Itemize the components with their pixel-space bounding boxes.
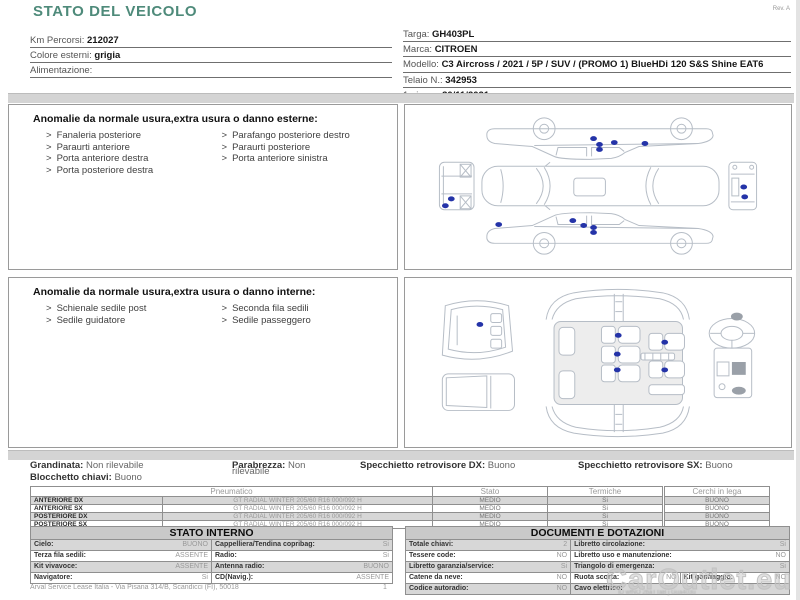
table-header-row: STATO INTERNO <box>31 527 393 540</box>
field-value: grigia <box>94 50 120 61</box>
table-row: Totale chiavi:2 Libretto circolazione:Si <box>406 540 790 551</box>
car-side-view-bottom <box>487 213 713 254</box>
bullet: > <box>222 153 228 164</box>
anomaly-item: >Schienale sedile post <box>46 303 222 315</box>
external-anomalies-title: Anomalie da normale usura,extra usura o … <box>33 113 397 125</box>
item-label: Totale chiavi: <box>409 540 453 550</box>
car-side-view-top <box>487 118 713 159</box>
item-value: Si <box>383 540 389 550</box>
damage-dot <box>596 147 603 152</box>
rim-state: BUONO <box>665 497 770 505</box>
internal-anomalies-list: >Schienale sedile post >Sedile guidatore… <box>46 303 397 326</box>
tyre-position: ANTERIORE SX <box>31 505 163 513</box>
tyre-state: MEDIO <box>433 505 548 513</box>
item-value: Si <box>202 573 208 583</box>
item-value: NO <box>557 584 568 594</box>
anomaly-text: Sedile passeggero <box>232 315 311 326</box>
field-value: GH403PL <box>432 29 474 40</box>
tyre-winter: Si <box>548 497 663 505</box>
field-label: Km Percorsi: <box>30 35 84 46</box>
item-value: NO <box>776 551 787 561</box>
cabin-seats-view <box>546 289 689 436</box>
field-value: CITROEN <box>435 44 478 55</box>
bullet: > <box>222 142 228 153</box>
item-value: Si <box>780 540 786 550</box>
exterior-damage-diagram <box>404 104 792 270</box>
item-label: CD(Navig.): <box>215 573 253 583</box>
item-label: Libretto circolazione: <box>574 540 645 550</box>
field-value: 342953 <box>445 75 477 86</box>
tyres-header-termiche: Termiche <box>548 487 663 497</box>
anomaly-text: Parafango posteriore destro <box>232 130 350 141</box>
bullet: > <box>46 142 52 153</box>
damage-dot <box>661 367 668 372</box>
stato-interno-table: STATO INTERNO Cielo:BUONO Cappelliera/Te… <box>30 526 393 584</box>
stato-interno-title: STATO INTERNO <box>31 527 393 540</box>
tyres-header-stato: Stato <box>433 487 548 497</box>
internal-anomalies-title: Anomalie da normale usura,extra usura o … <box>33 286 397 298</box>
table-header-row: DOCUMENTI E DOTAZIONI <box>406 527 790 540</box>
rim-state: BUONO <box>665 513 770 521</box>
item-label: Libretto garanzia/service: <box>409 562 494 572</box>
page-right-edge <box>796 0 800 600</box>
field-km-percorsi: Km Percorsi: 212027 <box>30 33 392 48</box>
condition-label: Specchietto retrovisore DX: <box>360 460 485 471</box>
item-value: NO <box>557 551 568 561</box>
bullet: > <box>46 153 52 164</box>
item-value: Si <box>383 551 389 561</box>
rim-state: BUONO <box>665 505 770 513</box>
damage-dot <box>611 140 618 145</box>
damage-dot <box>741 194 748 199</box>
bullet: > <box>222 315 228 326</box>
anomaly-item: >Paraurti anteriore <box>46 142 222 154</box>
page-title: STATO DEL VEICOLO <box>33 3 197 20</box>
field-alimentazione: Alimentazione: <box>30 63 392 78</box>
anomaly-item: >Fanaleria posteriore <box>46 130 222 142</box>
vehicle-status-document: STATO DEL VEICOLO Rev. A Km Percorsi: 21… <box>0 0 800 600</box>
damage-dot <box>590 136 597 141</box>
tyres-header-row: Pneumatico Stato Termiche <box>31 487 663 497</box>
item-label: Antenna radio: <box>215 562 264 572</box>
tyre-position: ANTERIORE DX <box>31 497 163 505</box>
condition-value: Non rilevabile <box>86 460 144 471</box>
bullet: > <box>222 130 228 141</box>
tyre-position: POSTERIORE DX <box>31 513 163 521</box>
item-value: BUONO <box>363 562 389 572</box>
table-row: ANTERIORE DX GT RADIAL WINTER 205/60 R16… <box>31 497 663 505</box>
anomaly-text: Paraurti posteriore <box>232 142 310 153</box>
item-value: Si <box>561 562 567 572</box>
condition-value: Buono <box>705 460 732 471</box>
anomaly-text: Seconda fila sedili <box>232 303 309 314</box>
anomaly-item: >Sedile guidatore <box>46 315 222 327</box>
damage-dot <box>596 142 603 147</box>
field-value: 212027 <box>87 35 119 46</box>
external-anomalies-list: >Fanaleria posteriore >Paraurti anterior… <box>46 130 397 176</box>
interior-damage-diagram <box>404 277 792 448</box>
table-row: Terza fila sedili:ASSENTE Radio:Si <box>31 551 393 562</box>
anomaly-item: >Porta posteriore destra <box>46 165 222 177</box>
tyre-winter: Si <box>548 505 663 513</box>
item-label: Radio: <box>215 551 237 561</box>
tyres-header-pneumatico: Pneumatico <box>31 487 433 497</box>
damage-dot <box>590 225 597 230</box>
damage-dot <box>740 185 747 190</box>
field-label: Targa: <box>403 29 429 40</box>
table-row: BUONO <box>665 505 770 513</box>
rims-header: Cerchi in lega <box>665 487 770 497</box>
field-colore-esterni: Colore esterni: grigia <box>30 48 392 63</box>
condition-value: Buono <box>114 472 141 483</box>
footer-company: Arval Service Lease Italia - Via Pisana … <box>30 584 239 591</box>
item-label: Navigatore: <box>34 573 73 583</box>
anomaly-item: >Porta anteriore sinistra <box>222 153 398 165</box>
tailgate-open-view <box>442 301 512 359</box>
tyre-state: MEDIO <box>433 513 548 521</box>
anomaly-item: >Parafango posteriore destro <box>222 130 398 142</box>
vehicle-info-right: Targa: GH403PL Marca: CITROEN Modello: C… <box>403 27 791 103</box>
field-telaio: Telaio N.: 342953 <box>403 73 791 88</box>
condition-blocchetto-chiavi: Blocchetto chiavi: Buono <box>30 473 142 483</box>
bullet: > <box>46 130 52 141</box>
item-label: Terza fila sedili: <box>34 551 86 561</box>
car-interior-drawing <box>405 278 791 447</box>
anomaly-item: >Seconda fila sedili <box>222 303 398 315</box>
damage-dot <box>442 203 449 208</box>
car-exterior-drawing <box>405 105 791 269</box>
field-targa: Targa: GH403PL <box>403 27 791 42</box>
item-value: NO <box>557 573 568 583</box>
condition-label: Blocchetto chiavi: <box>30 472 112 483</box>
tyre-winter: Si <box>548 513 663 521</box>
condition-value: rilevabile <box>232 466 270 477</box>
anomaly-text: Porta posteriore destra <box>57 165 154 176</box>
item-value: ASSENTE <box>175 562 208 572</box>
section-separator-bar <box>8 450 794 460</box>
damage-dot <box>569 218 576 223</box>
anomaly-item: >Sedile passeggero <box>222 315 398 327</box>
item-value: 2 <box>563 540 567 550</box>
bullet: > <box>46 315 52 326</box>
dashboard-view <box>709 313 754 398</box>
field-label: Telaio N.: <box>403 75 443 86</box>
damage-dot <box>495 222 502 227</box>
car-top-view <box>482 162 719 209</box>
table-row: BUONO <box>665 497 770 505</box>
anomaly-text: Fanaleria posteriore <box>57 130 142 141</box>
damage-dot <box>590 230 597 235</box>
damage-dot <box>661 340 668 345</box>
tyre-spec: GT RADIAL WINTER 205/60 R16 000/092 H <box>163 513 433 521</box>
item-label: Cielo: <box>34 540 53 550</box>
footer-page-number: 1 <box>383 584 387 591</box>
documenti-title: DOCUMENTI E DOTAZIONI <box>406 527 790 540</box>
damage-dot <box>614 352 621 357</box>
item-value: BUONO <box>182 540 208 550</box>
table-row: POSTERIORE DX GT RADIAL WINTER 205/60 R1… <box>31 513 663 521</box>
field-label: Alimentazione: <box>30 65 92 76</box>
condition-label: Grandinata: <box>30 460 83 471</box>
rims-table: Cerchi in lega BUONO BUONO BUONO BUONO <box>664 486 770 529</box>
item-label: Cappelliera/Tendina copribag: <box>215 540 315 550</box>
tyre-spec: GT RADIAL WINTER 205/60 R16 000/092 H <box>163 497 433 505</box>
damage-dot <box>580 223 587 228</box>
tyre-spec: GT RADIAL WINTER 205/60 R16 000/092 H <box>163 505 433 513</box>
table-row: Navigatore:Si CD(Navig.):ASSENTE <box>31 573 393 584</box>
item-label: Kit vivavoce: <box>34 562 77 572</box>
field-label: Marca: <box>403 44 432 55</box>
table-row: BUONO <box>665 513 770 521</box>
internal-anomalies-panel: Anomalie da normale usura,extra usura o … <box>8 277 398 448</box>
footer-id-text: ID wfNO 2baTTaB j Gua403u <box>618 590 696 596</box>
table-row: Tessere code:NO Libretto uso e manutenzi… <box>406 551 790 562</box>
vehicle-info-left: Km Percorsi: 212027 Colore esterni: grig… <box>30 33 392 78</box>
damage-dot <box>477 322 484 327</box>
bullet: > <box>46 303 52 314</box>
condition-value: Non <box>288 460 305 471</box>
damage-dot <box>615 333 622 338</box>
condition-specchietto-sx: Specchietto retrovisore SX: Buono <box>578 461 733 471</box>
item-label: Libretto uso e manutenzione: <box>574 551 672 561</box>
condition-value: Buono <box>488 460 515 471</box>
condition-specchietto-dx: Specchietto retrovisore DX: Buono <box>360 461 515 471</box>
condition-label: Specchietto retrovisore SX: <box>578 460 703 471</box>
anomaly-text: Porta anteriore sinistra <box>232 153 328 164</box>
anomaly-text: Sedile guidatore <box>57 315 126 326</box>
external-anomalies-panel: Anomalie da normale usura,extra usura o … <box>8 104 398 270</box>
bullet: > <box>222 303 228 314</box>
item-label: Codice autoradio: <box>409 584 469 594</box>
tyre-state: MEDIO <box>433 497 548 505</box>
item-label: Catene da neve: <box>409 573 463 583</box>
table-row: ANTERIORE SX GT RADIAL WINTER 205/60 R16… <box>31 505 663 513</box>
anomaly-text: Paraurti anteriore <box>57 142 130 153</box>
damage-dot <box>642 141 649 146</box>
damage-dot <box>448 196 455 201</box>
table-row: Kit vivavoce:ASSENTE Antenna radio:BUONO <box>31 562 393 573</box>
anomaly-item: >Porta anteriore destra <box>46 153 222 165</box>
field-marca: Marca: CITROEN <box>403 42 791 57</box>
anomaly-text: Porta anteriore destra <box>57 153 149 164</box>
rims-header-row: Cerchi in lega <box>665 487 770 497</box>
field-value: C3 Aircross / 2021 / 5P / SUV / (PROMO 1… <box>442 59 764 70</box>
tyres-table: Pneumatico Stato Termiche ANTERIORE DX G… <box>30 486 663 529</box>
damage-dot <box>614 367 621 372</box>
bullet: > <box>46 165 52 176</box>
condition-grandinata: Grandinata: Non rilevabile <box>30 461 144 471</box>
condition-parabrezza-overflow: rilevabile <box>232 467 270 477</box>
revision-label: Rev. A <box>773 6 790 12</box>
field-modello: Modello: C3 Aircross / 2021 / 5P / SUV /… <box>403 57 791 73</box>
item-value: ASSENTE <box>356 573 389 583</box>
field-label: Modello: <box>403 59 439 70</box>
field-label: Colore esterni: <box>30 50 92 61</box>
section-separator-bar <box>8 93 794 103</box>
trunk-closed-view <box>442 374 514 411</box>
item-value: ASSENTE <box>175 551 208 561</box>
item-label: Tessere code: <box>409 551 456 561</box>
table-row: Cielo:BUONO Cappelliera/Tendina copribag… <box>31 540 393 551</box>
anomaly-text: Schienale sedile post <box>57 303 147 314</box>
car-front-view <box>439 162 474 209</box>
anomaly-item: >Paraurti posteriore <box>222 142 398 154</box>
